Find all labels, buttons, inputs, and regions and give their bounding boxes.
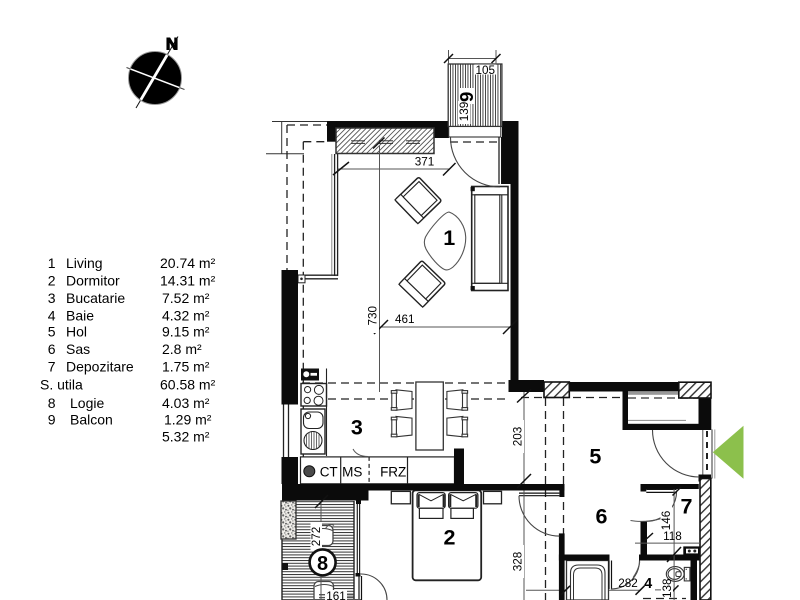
svg-text:9: 9 xyxy=(456,92,477,102)
svg-text:Depozitare: Depozitare xyxy=(66,359,134,375)
svg-text:7.52 m²: 7.52 m² xyxy=(162,290,210,306)
svg-text:Hol: Hol xyxy=(66,324,87,340)
svg-text:2.8 m²: 2.8 m² xyxy=(162,341,202,357)
svg-text:282: 282 xyxy=(618,577,638,590)
svg-text:6: 6 xyxy=(48,341,56,357)
svg-text:1: 1 xyxy=(48,255,56,271)
svg-text:5: 5 xyxy=(48,324,56,340)
svg-text:371: 371 xyxy=(415,156,435,169)
svg-text:730: 730 xyxy=(367,306,380,326)
svg-text:FRZ: FRZ xyxy=(380,465,406,480)
svg-text:9.15 m²: 9.15 m² xyxy=(162,324,210,340)
svg-text:3: 3 xyxy=(351,415,363,439)
svg-text:4.32 m²: 4.32 m² xyxy=(162,308,210,324)
svg-text:3: 3 xyxy=(48,290,56,306)
svg-text:4: 4 xyxy=(48,308,56,324)
svg-text:139: 139 xyxy=(458,102,471,122)
svg-text:4.03 m²: 4.03 m² xyxy=(162,395,210,411)
svg-text:105: 105 xyxy=(475,64,495,77)
svg-text:7: 7 xyxy=(48,359,56,375)
svg-text:14.31 m²: 14.31 m² xyxy=(160,273,216,289)
svg-text:Living: Living xyxy=(66,255,103,271)
svg-text:1: 1 xyxy=(443,226,455,250)
svg-text:461: 461 xyxy=(395,313,415,326)
svg-text:20.74 m²: 20.74 m² xyxy=(160,255,216,271)
svg-text:Baie: Baie xyxy=(66,308,94,324)
svg-text:N: N xyxy=(166,35,178,54)
svg-text:1.75 m²: 1.75 m² xyxy=(162,359,210,375)
svg-text:146: 146 xyxy=(660,511,673,531)
svg-text:CT: CT xyxy=(320,465,338,480)
svg-text:2: 2 xyxy=(48,273,56,289)
svg-text:9: 9 xyxy=(48,412,56,428)
svg-text:S. utila: S. utila xyxy=(40,377,83,393)
svg-text:8: 8 xyxy=(48,395,56,411)
svg-text:Dormitor: Dormitor xyxy=(66,273,120,289)
svg-text:138: 138 xyxy=(661,578,674,598)
svg-text:60.58 m²: 60.58 m² xyxy=(160,377,216,393)
svg-text:2: 2 xyxy=(444,525,456,549)
svg-text:6: 6 xyxy=(596,505,608,529)
svg-text:1.29 m²: 1.29 m² xyxy=(164,412,212,428)
svg-text:MS: MS xyxy=(342,465,362,480)
svg-text:7: 7 xyxy=(681,495,693,519)
svg-text:5: 5 xyxy=(589,444,601,468)
svg-text:Sas: Sas xyxy=(66,341,90,357)
svg-text:Balcon: Balcon xyxy=(70,412,113,428)
svg-text:5.32 m²: 5.32 m² xyxy=(162,429,210,445)
svg-text:272: 272 xyxy=(310,527,323,547)
svg-text:Logie: Logie xyxy=(70,395,104,411)
svg-text:161: 161 xyxy=(326,590,346,600)
svg-text:203: 203 xyxy=(511,427,524,447)
svg-text:118: 118 xyxy=(663,530,682,543)
svg-text:8: 8 xyxy=(317,553,328,575)
svg-text:Bucatarie: Bucatarie xyxy=(66,290,125,306)
svg-text:328: 328 xyxy=(511,552,524,572)
svg-text:4: 4 xyxy=(644,576,652,592)
